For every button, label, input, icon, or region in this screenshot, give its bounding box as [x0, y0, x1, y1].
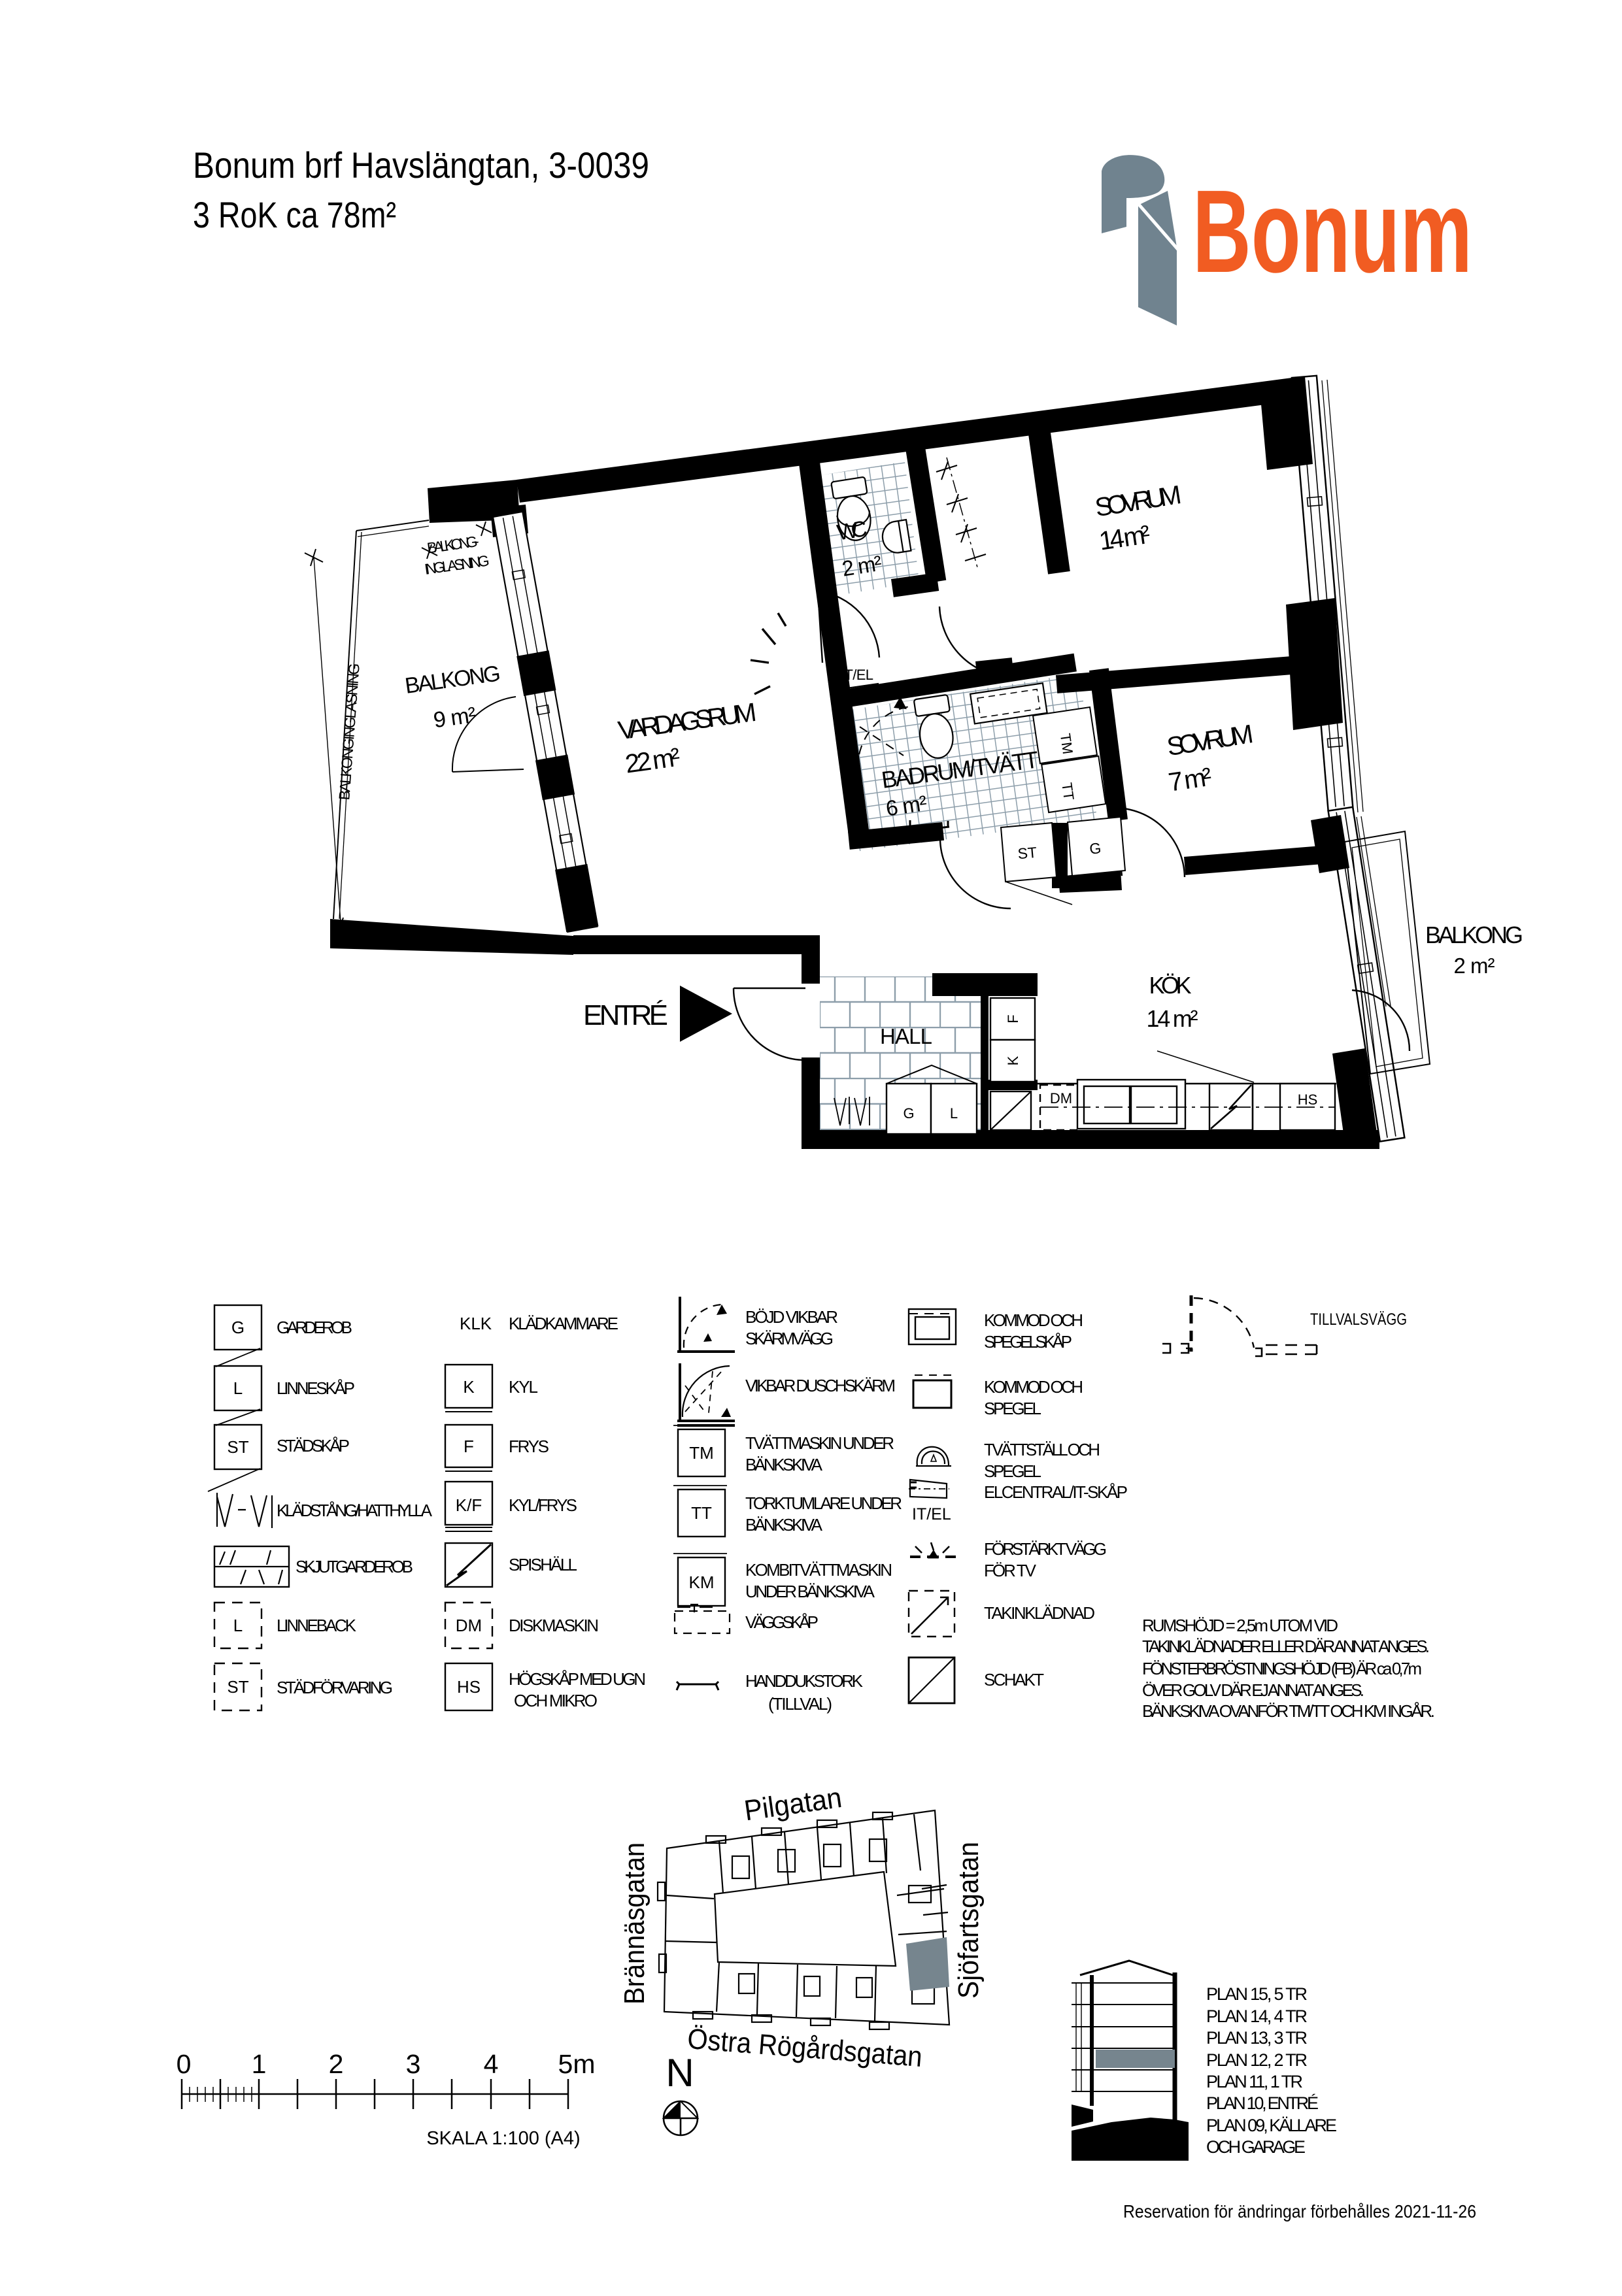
svg-text:TORKTUMLARE UNDER: TORKTUMLARE UNDER — [745, 1493, 902, 1513]
svg-text:HS: HS — [457, 1677, 481, 1697]
svg-text:TM: TM — [1057, 732, 1076, 755]
svg-text:TT: TT — [691, 1503, 712, 1523]
svg-text:K/F: K/F — [456, 1495, 482, 1515]
svg-text:N: N — [666, 2051, 694, 2095]
svg-text:G: G — [1089, 839, 1102, 857]
svg-text:BÄNKSKIVA: BÄNKSKIVA — [745, 1515, 823, 1535]
svg-text:9 m²: 9 m² — [432, 703, 478, 733]
svg-text:ST: ST — [227, 1437, 248, 1457]
svg-text:PLAN 12, 2 TR: PLAN 12, 2 TR — [1206, 2050, 1308, 2070]
svg-text:PLAN 11, 1 TR: PLAN 11, 1 TR — [1206, 2072, 1303, 2091]
svg-text:KYL: KYL — [509, 1377, 538, 1397]
svg-text:FÖRSTÄRKT VÄGG: FÖRSTÄRKT VÄGG — [984, 1539, 1107, 1559]
svg-text:BÄNKSKIVA OVANFÖR TM/TT OCH KM: BÄNKSKIVA OVANFÖR TM/TT OCH KM INGÅR. — [1142, 1701, 1435, 1721]
svg-text:RUMSHÖJD = 2,5m UTOM VID: RUMSHÖJD = 2,5m UTOM VID — [1142, 1616, 1338, 1635]
svg-text:HANDDUKSTORK: HANDDUKSTORK — [745, 1671, 864, 1691]
svg-text:ÖVER GOLV DÄR EJ ANNAT ANGES.: ÖVER GOLV DÄR EJ ANNAT ANGES. — [1142, 1680, 1364, 1700]
svg-text:VÄGGSKÅP: VÄGGSKÅP — [745, 1612, 819, 1632]
svg-text:TT: TT — [1058, 782, 1077, 801]
svg-text:3: 3 — [406, 2049, 421, 2079]
svg-text:TM: TM — [689, 1443, 714, 1463]
svg-text:LINNESKÅP: LINNESKÅP — [277, 1378, 355, 1398]
svg-text:TAKINKLÄDNADER ELLER DÄR ANNAT: TAKINKLÄDNADER ELLER DÄR ANNAT ANGES. — [1142, 1637, 1430, 1656]
svg-text:(TILLVAL): (TILLVAL) — [768, 1694, 832, 1714]
svg-text:SOVRUM: SOVRUM — [1093, 480, 1183, 522]
svg-text:Sjöfartsgatan: Sjöfartsgatan — [953, 1842, 985, 1999]
svg-text:BALKONG: BALKONG — [403, 661, 502, 699]
svg-text:K: K — [1005, 1056, 1021, 1065]
svg-text:F: F — [464, 1437, 474, 1456]
svg-text:HÖGSKÅP MED UGN: HÖGSKÅP MED UGN — [509, 1669, 646, 1689]
svg-text:SKJUTGARDEROB: SKJUTGARDEROB — [296, 1557, 413, 1576]
svg-text:DM: DM — [456, 1616, 482, 1635]
svg-text:SKALA 1:100 (A4): SKALA 1:100 (A4) — [426, 2128, 580, 2149]
svg-text:BÄNKSKIVA: BÄNKSKIVA — [745, 1455, 823, 1474]
svg-text:HS: HS — [1298, 1091, 1318, 1108]
svg-text:ST: ST — [1017, 844, 1038, 862]
svg-text:FÖR TV: FÖR TV — [984, 1561, 1037, 1580]
svg-text:OCH GARAGE: OCH GARAGE — [1206, 2137, 1306, 2157]
svg-text:SOVRUM: SOVRUM — [1165, 720, 1255, 761]
svg-text:14 m²: 14 m² — [1147, 1005, 1198, 1032]
svg-text:KLÄDSTÅNG/HATTHYLLA: KLÄDSTÅNG/HATTHYLLA — [277, 1501, 433, 1520]
svg-text:KYL/FRYS: KYL/FRYS — [509, 1495, 577, 1515]
svg-text:FRYS: FRYS — [509, 1437, 549, 1456]
svg-text:Bonum: Bonum — [1192, 166, 1472, 297]
svg-text:Reservation för ändringar förb: Reservation för ändringar förbehålles 20… — [1123, 2201, 1476, 2221]
svg-text:3 RoK ca 78m²: 3 RoK ca 78m² — [193, 194, 396, 235]
svg-text:PLAN 15, 5 TR: PLAN 15, 5 TR — [1206, 1984, 1308, 2004]
svg-text:UNDER BÄNKSKIVA: UNDER BÄNKSKIVA — [745, 1582, 875, 1601]
svg-text:5m: 5m — [558, 2049, 596, 2079]
svg-text:DM: DM — [1050, 1090, 1072, 1106]
svg-text:HALL: HALL — [880, 1024, 932, 1048]
svg-text:0: 0 — [177, 2049, 192, 2079]
svg-text:Bonum brf Havslängtan, 3-0039: Bonum brf Havslängtan, 3-0039 — [193, 144, 649, 186]
svg-text:DISKMASKIN: DISKMASKIN — [509, 1616, 599, 1635]
svg-text:BALKONG-: BALKONG- — [426, 533, 480, 557]
svg-text:KOMBITVÄTTMASKIN: KOMBITVÄTTMASKIN — [745, 1560, 892, 1580]
svg-text:FÖNSTERBRÖSTNINGSHÖJD (FB) ÄR: FÖNSTERBRÖSTNINGSHÖJD (FB) ÄR ca 0,7m — [1142, 1659, 1422, 1678]
svg-text:IT/EL: IT/EL — [841, 667, 873, 683]
svg-text:KOMMOD OCH: KOMMOD OCH — [984, 1377, 1083, 1397]
svg-text:STÄDSKÅP: STÄDSKÅP — [277, 1436, 350, 1456]
svg-text:TAKINKLÄDNAD: TAKINKLÄDNAD — [984, 1603, 1095, 1623]
svg-text:KOMMOD OCH: KOMMOD OCH — [984, 1310, 1083, 1330]
svg-text:TILLVALSVÄGG: TILLVALSVÄGG — [1310, 1310, 1407, 1329]
svg-text:ST: ST — [227, 1677, 248, 1697]
svg-text:L: L — [233, 1616, 243, 1635]
svg-text:LINNEBACK: LINNEBACK — [277, 1616, 357, 1635]
svg-text:WC: WC — [836, 516, 869, 546]
svg-text:PLAN 09, KÄLLARE: PLAN 09, KÄLLARE — [1206, 2116, 1337, 2135]
svg-text:BÖJD VIKBAR: BÖJD VIKBAR — [745, 1307, 838, 1327]
svg-text:GARDEROB: GARDEROB — [277, 1318, 352, 1337]
svg-text:PLAN 10, ENTRÉ: PLAN 10, ENTRÉ — [1206, 2093, 1319, 2113]
svg-text:KM: KM — [689, 1572, 715, 1592]
svg-text:SPEGELSKÅP: SPEGELSKÅP — [984, 1332, 1072, 1352]
svg-text:14 m²: 14 m² — [1097, 520, 1151, 556]
svg-text:SPEGEL: SPEGEL — [984, 1399, 1041, 1418]
svg-text:SKÄRMVÄGG: SKÄRMVÄGG — [745, 1329, 834, 1348]
svg-text:KLK: KLK — [460, 1314, 492, 1333]
svg-text:2: 2 — [329, 2049, 344, 2079]
svg-text:IT/EL: IT/EL — [912, 1505, 951, 1523]
svg-text:ENTRÉ: ENTRÉ — [583, 999, 668, 1031]
svg-text:2 m²: 2 m² — [1454, 954, 1495, 978]
svg-text:TVÄTTMASKIN UNDER: TVÄTTMASKIN UNDER — [745, 1433, 894, 1453]
svg-text:4: 4 — [484, 2049, 499, 2079]
svg-text:VIKBAR DUSCHSKÄRM: VIKBAR DUSCHSKÄRM — [745, 1376, 896, 1395]
svg-text:7 m²: 7 m² — [1166, 763, 1213, 797]
svg-text:BALKONGINGLASNING: BALKONGINGLASNING — [335, 663, 363, 801]
svg-text:KLÄDKAMMARE: KLÄDKAMMARE — [509, 1314, 618, 1333]
svg-text:G: G — [903, 1105, 914, 1122]
svg-text:Brännäsgatan: Brännäsgatan — [618, 1842, 650, 2005]
svg-text:ELCENTRAL/IT-SKÅP: ELCENTRAL/IT-SKÅP — [984, 1482, 1128, 1502]
svg-text:KÖK: KÖK — [1149, 972, 1192, 999]
svg-text:22 m²: 22 m² — [624, 743, 682, 779]
svg-text:L: L — [950, 1105, 958, 1122]
svg-text:PLAN 13, 3 TR: PLAN 13, 3 TR — [1206, 2028, 1308, 2048]
svg-text:BALKONG: BALKONG — [1425, 922, 1523, 948]
svg-text:PLAN 14, 4 TR: PLAN 14, 4 TR — [1206, 2006, 1308, 2026]
svg-text:K: K — [463, 1377, 475, 1397]
svg-text:F: F — [1005, 1014, 1021, 1023]
svg-text:STÄDFÖRVARING: STÄDFÖRVARING — [277, 1678, 393, 1697]
svg-text:OCH MIKRO: OCH MIKRO — [514, 1691, 598, 1710]
svg-text:VARDAGSRUM: VARDAGSRUM — [617, 698, 758, 746]
svg-text:Östra Rögårdsgatan: Östra Rögårdsgatan — [686, 2023, 924, 2073]
svg-text:1: 1 — [252, 2049, 267, 2079]
svg-text:SPISHÄLL: SPISHÄLL — [509, 1555, 577, 1574]
svg-text:SCHAKT: SCHAKT — [984, 1670, 1044, 1689]
svg-text:G: G — [231, 1318, 245, 1337]
svg-text:L: L — [233, 1378, 243, 1398]
svg-text:SPEGEL: SPEGEL — [984, 1461, 1041, 1481]
svg-text:TVÄTTSTÄLL OCH: TVÄTTSTÄLL OCH — [984, 1440, 1100, 1459]
